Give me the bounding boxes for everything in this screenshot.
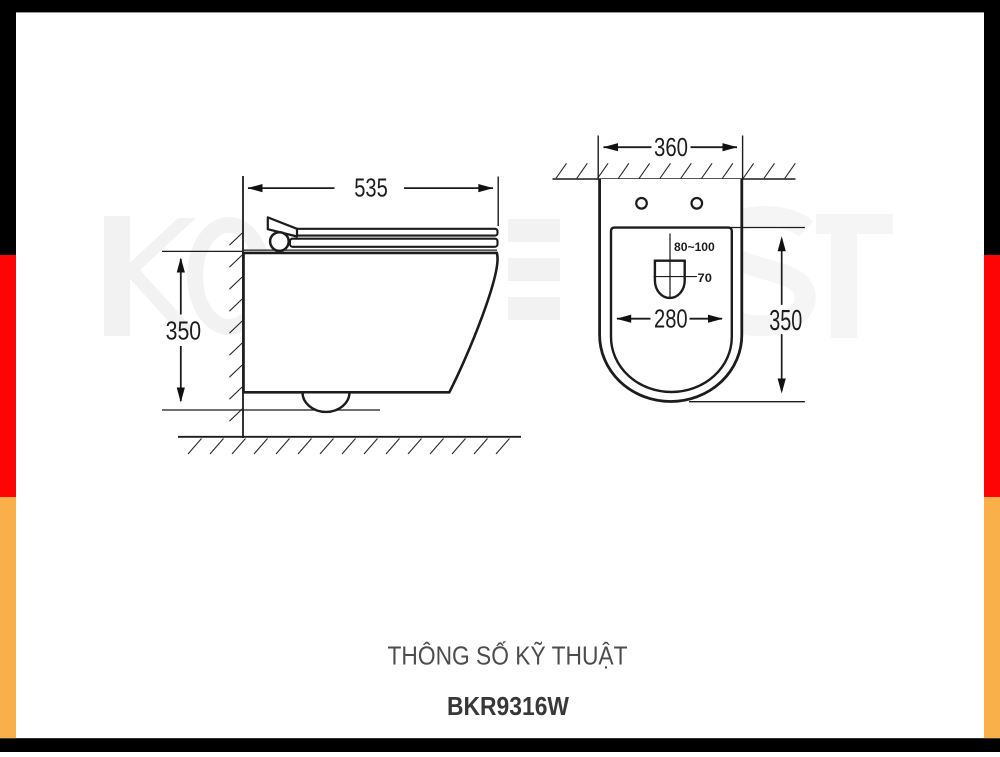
svg-text:350: 350: [769, 305, 802, 337]
svg-text:280: 280: [654, 304, 688, 334]
svg-text:BKR9316W: BKR9316W: [447, 691, 569, 721]
svg-text:80~100: 80~100: [674, 242, 715, 254]
svg-text:THÔNG SỐ KỸ THUẬT: THÔNG SỐ KỸ THUẬT: [388, 641, 628, 671]
svg-text:360: 360: [654, 132, 688, 162]
svg-text:535: 535: [354, 173, 388, 203]
svg-text:70: 70: [698, 271, 713, 285]
svg-text:350: 350: [166, 316, 202, 346]
